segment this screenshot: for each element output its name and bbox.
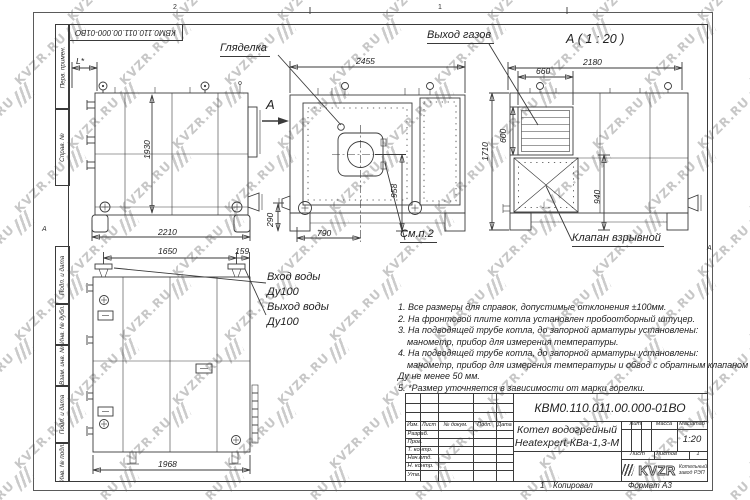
footer-format: Формат А3 [628, 482, 672, 490]
row-razrab: Разраб. [408, 432, 429, 438]
row-nachotd: Нач.отд. [408, 456, 432, 462]
kvzr-coil-icon [621, 464, 635, 476]
front-width-dim: 2455 [356, 57, 375, 66]
side-top-dim: L* [76, 57, 84, 66]
top-width-dim: 1968 [158, 460, 177, 469]
row-utv: Утв. [408, 473, 421, 479]
back-width-dim: 2180 [583, 58, 602, 67]
pipes-span-dim: 1650 [158, 247, 177, 256]
note-line: Ду не менее 50 мм. [398, 372, 480, 381]
back-view-drawing [489, 44, 701, 241]
note-line: манометр, прибор для измерения температу… [407, 338, 619, 347]
col-data: Дата [496, 421, 513, 430]
section-letter: А [266, 98, 275, 111]
lifting-lug-icon [99, 82, 209, 93]
sheets-label: Листов [654, 451, 679, 459]
side-height-dim: 1930 [143, 140, 152, 159]
zone-number-1: 1 [438, 4, 442, 11]
footer-copied: Копировал [553, 482, 593, 490]
gas-outlet-label: Выход газов [427, 30, 494, 44]
note-line: манометр, прибор для измерения температу… [407, 361, 748, 370]
col-list: Лист [420, 421, 438, 430]
col-podp: Подп. [473, 421, 496, 430]
row-tkontr: Т. контр. [408, 448, 433, 454]
water-outlet-pipe [228, 264, 245, 277]
explosion-valve-label: Клапан взрывной [572, 233, 664, 247]
col-docum: № докум. [438, 421, 473, 430]
edge-span-dim: 159 [235, 247, 249, 256]
title-block: КВМ0.110.011.00.000-01ВО Котел водогрейн… [405, 393, 708, 482]
product-name-line1: Котел водогрейный [517, 424, 617, 437]
col-izm: Изм. [406, 421, 420, 430]
gas-outlet-louver [518, 107, 573, 155]
kvzr-logo-text: KVZR [638, 463, 675, 478]
company-logo: KVZR Котельный завод РЭП [621, 459, 707, 481]
view-a-title: А ( 1 : 20 ) [566, 33, 624, 46]
note-line: 5. *Размер уточняется в зависимости от м… [398, 384, 645, 393]
mid-height-dim: 940 [593, 190, 602, 204]
top-view-drawing [87, 252, 266, 474]
row-prov: Пров. [408, 440, 423, 446]
sight-glass-label: Гляделка [220, 43, 270, 57]
company-sub2: завод РЭП [679, 470, 707, 477]
sheets-value: 1 [689, 451, 707, 459]
note-line: 1. Все размеры для справок, допустимые о… [398, 303, 666, 312]
note-line: 3. На подводящей трубе котла, до запорно… [398, 326, 698, 335]
scale-value: 1:20 [677, 431, 707, 449]
water-out-dn-label: Ду100 [267, 317, 299, 328]
note-line: 4. На подводящей трубе котла, до запорно… [398, 349, 698, 358]
mass-label: Масса [651, 421, 677, 429]
burner-height-dim: 958 [390, 184, 399, 198]
scale-label: Масштаб [677, 421, 707, 429]
water-in-dn-label: Ду100 [267, 287, 299, 298]
footer-num: 1 [540, 482, 544, 490]
zone-number-2: 2 [173, 4, 177, 11]
zone-letter-left: А [42, 226, 47, 233]
back-height-dim: 1710 [481, 142, 490, 161]
explosion-valve-panel [514, 158, 578, 212]
water-inlet-pipe [95, 264, 112, 277]
louver-width-dim: 660 [536, 67, 550, 76]
note-line: 2. На фронтовой плите котла установлен п… [398, 315, 695, 324]
lit-label: Лит. [621, 421, 651, 429]
pipe-height-dim: 290 [266, 213, 275, 227]
side-width-dim: 2210 [158, 228, 177, 237]
front-bottom-dim: 790 [317, 229, 331, 238]
row-nkontr: Н. контр. [408, 464, 434, 470]
side-view-drawing [72, 62, 262, 241]
front-view-drawing [262, 55, 465, 242]
sheet-label: Лист [621, 451, 654, 459]
see-note-label: См.п.2 [400, 229, 437, 243]
product-name-line2: Heatexpert-КВа-1,3-М [515, 437, 619, 450]
doc-number: КВМ0.110.011.00.000-01ВО [513, 394, 707, 421]
water-out-label: Выход воды [267, 302, 329, 313]
water-in-label: Вход воды [267, 272, 320, 283]
louver-height-dim: 600 [499, 129, 508, 143]
section-arrow-icon [262, 117, 289, 125]
zone-letter-right: А [707, 245, 712, 252]
drawing-sheet: KVZR.RUKVZR.RUKVZR.RUKVZR.RUKVZR.RUKVZR.… [0, 0, 750, 500]
